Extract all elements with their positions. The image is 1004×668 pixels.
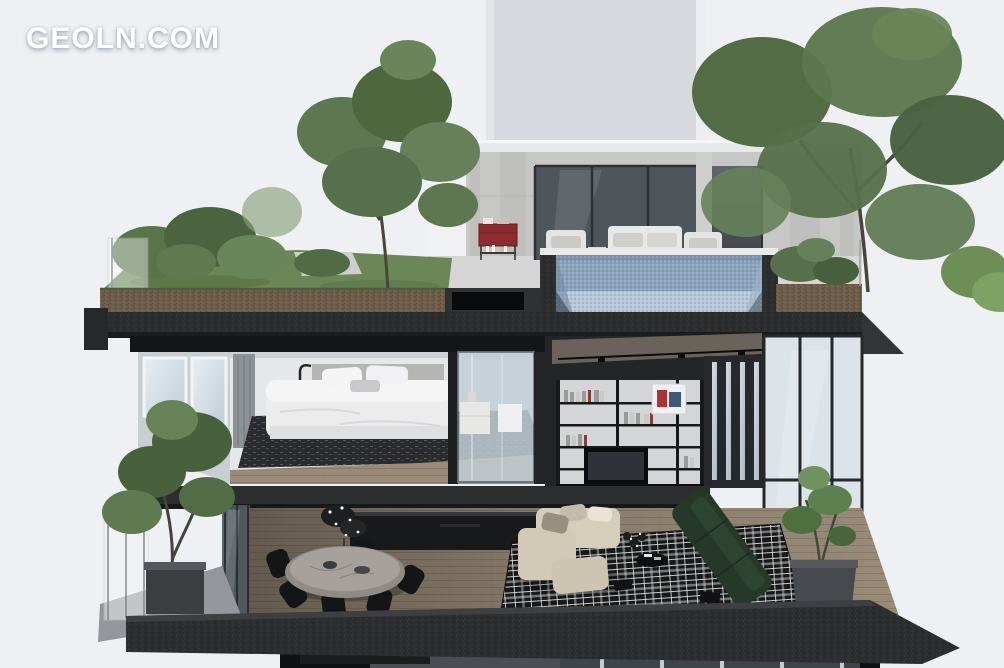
soil-layer [776, 284, 862, 312]
geoln-watermark: GEOLN.COM [26, 22, 220, 56]
dining-table [285, 546, 405, 598]
background-tower [486, 0, 706, 150]
render-canvas [0, 0, 1004, 668]
slit-window-wall [704, 356, 764, 488]
pool-coping [540, 248, 778, 255]
balcony-planter [146, 570, 204, 614]
architectural-render: GEOLN.COM [0, 0, 1004, 668]
terrace-recess [452, 292, 524, 310]
tv [584, 448, 648, 484]
slab-left-step [84, 308, 108, 350]
white-fixture [498, 404, 522, 432]
roof-glass-railing [108, 238, 148, 290]
soil-layer [100, 288, 446, 314]
art-frame [652, 384, 686, 414]
glass-bathroom-pod [448, 352, 545, 484]
